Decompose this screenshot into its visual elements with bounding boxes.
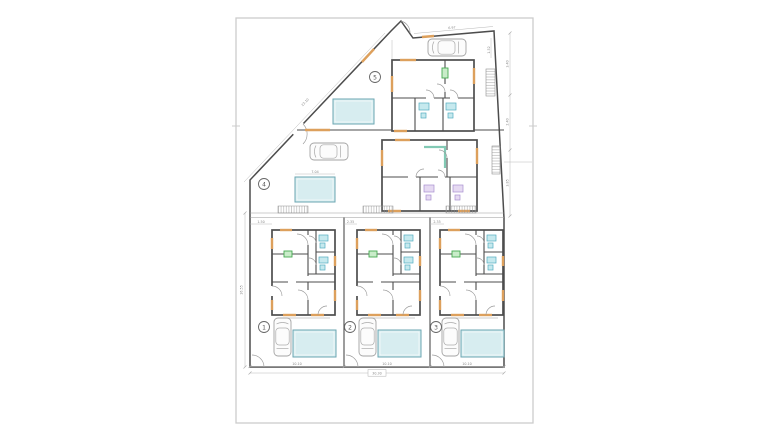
dim-gap-right: 2.35 xyxy=(433,220,440,224)
unit-3-number: 3 xyxy=(434,324,438,331)
dim-bottom-center: 10.10 xyxy=(382,362,391,366)
dim-top-edge: 6.97 xyxy=(448,25,456,30)
unit-3-area xyxy=(440,206,504,357)
dim-bottom-left: 10.10 xyxy=(292,362,301,366)
floor-plan-screenshot: 1 2 3 4 5 10.10 10.10 10.10 30.30 16.55 … xyxy=(0,0,770,432)
dim-bottom-total: 30.30 xyxy=(372,371,381,375)
unit-4-pool xyxy=(295,177,335,202)
bath-toilet xyxy=(448,113,453,118)
unit-4-number: 4 xyxy=(262,181,266,188)
unit-5-car xyxy=(428,39,466,56)
unit-5-area xyxy=(333,39,495,131)
dim-right-middle: 2.40 xyxy=(506,118,510,125)
unit-4-area xyxy=(295,140,500,211)
unit-1-yard-gate xyxy=(252,355,264,367)
bath-sink xyxy=(419,103,429,110)
green-fixture xyxy=(442,68,448,78)
staircase-upper xyxy=(486,69,495,96)
unit-2-number: 2 xyxy=(348,324,352,331)
dim-gap-center: 2.35 xyxy=(347,220,354,224)
bath-toilet xyxy=(455,195,460,200)
unit-4-house xyxy=(382,140,477,211)
unit-1-number: 1 xyxy=(262,324,266,331)
bath-toilet xyxy=(421,113,426,118)
bath-toilet xyxy=(426,195,431,200)
unit-1-area xyxy=(272,206,336,357)
dim-pool-width: 7.04 xyxy=(311,170,318,174)
floor-plan-canvas: 1 2 3 4 5 10.10 10.10 10.10 30.30 16.55 … xyxy=(0,0,770,432)
dim-bottom-right: 10.10 xyxy=(462,362,471,366)
dim-right-lower: 3.85 xyxy=(506,179,510,186)
unit-5-pool xyxy=(333,99,374,124)
unit-4-car xyxy=(310,143,348,160)
dim-left-side: 16.55 xyxy=(240,285,244,294)
dim-diagonal: 23.10 xyxy=(301,98,310,108)
bath-sink xyxy=(446,103,456,110)
unit-5-house xyxy=(392,60,474,131)
unit-2-yard-gate xyxy=(346,355,358,367)
unit-3-yard-gate xyxy=(432,355,444,367)
unit-2-area xyxy=(357,206,421,357)
dim-gap-left: 1.50 xyxy=(257,220,264,224)
dim-corner-height: 1.52 xyxy=(487,46,491,53)
bath-sink xyxy=(453,185,463,192)
dim-right-upper: 3.40 xyxy=(506,60,510,67)
gate-door-arc xyxy=(303,124,307,144)
bath-sink xyxy=(424,185,434,192)
unit-5-number: 5 xyxy=(373,74,377,81)
staircase-lower xyxy=(492,146,500,174)
